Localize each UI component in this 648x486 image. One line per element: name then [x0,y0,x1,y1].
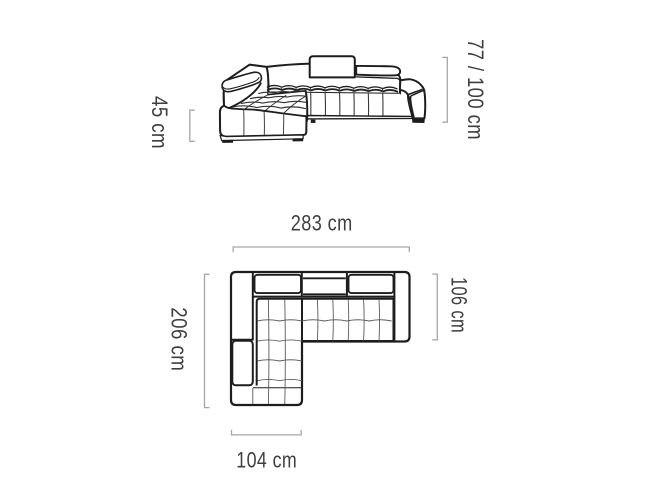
svg-text:45 cm: 45 cm [147,96,172,149]
svg-text:206 cm: 206 cm [167,307,192,371]
svg-text:104 cm: 104 cm [236,447,297,472]
svg-text:106 cm: 106 cm [447,277,472,333]
svg-text:283 cm: 283 cm [291,210,353,235]
svg-text:77 / 100 cm: 77 / 100 cm [463,39,488,140]
